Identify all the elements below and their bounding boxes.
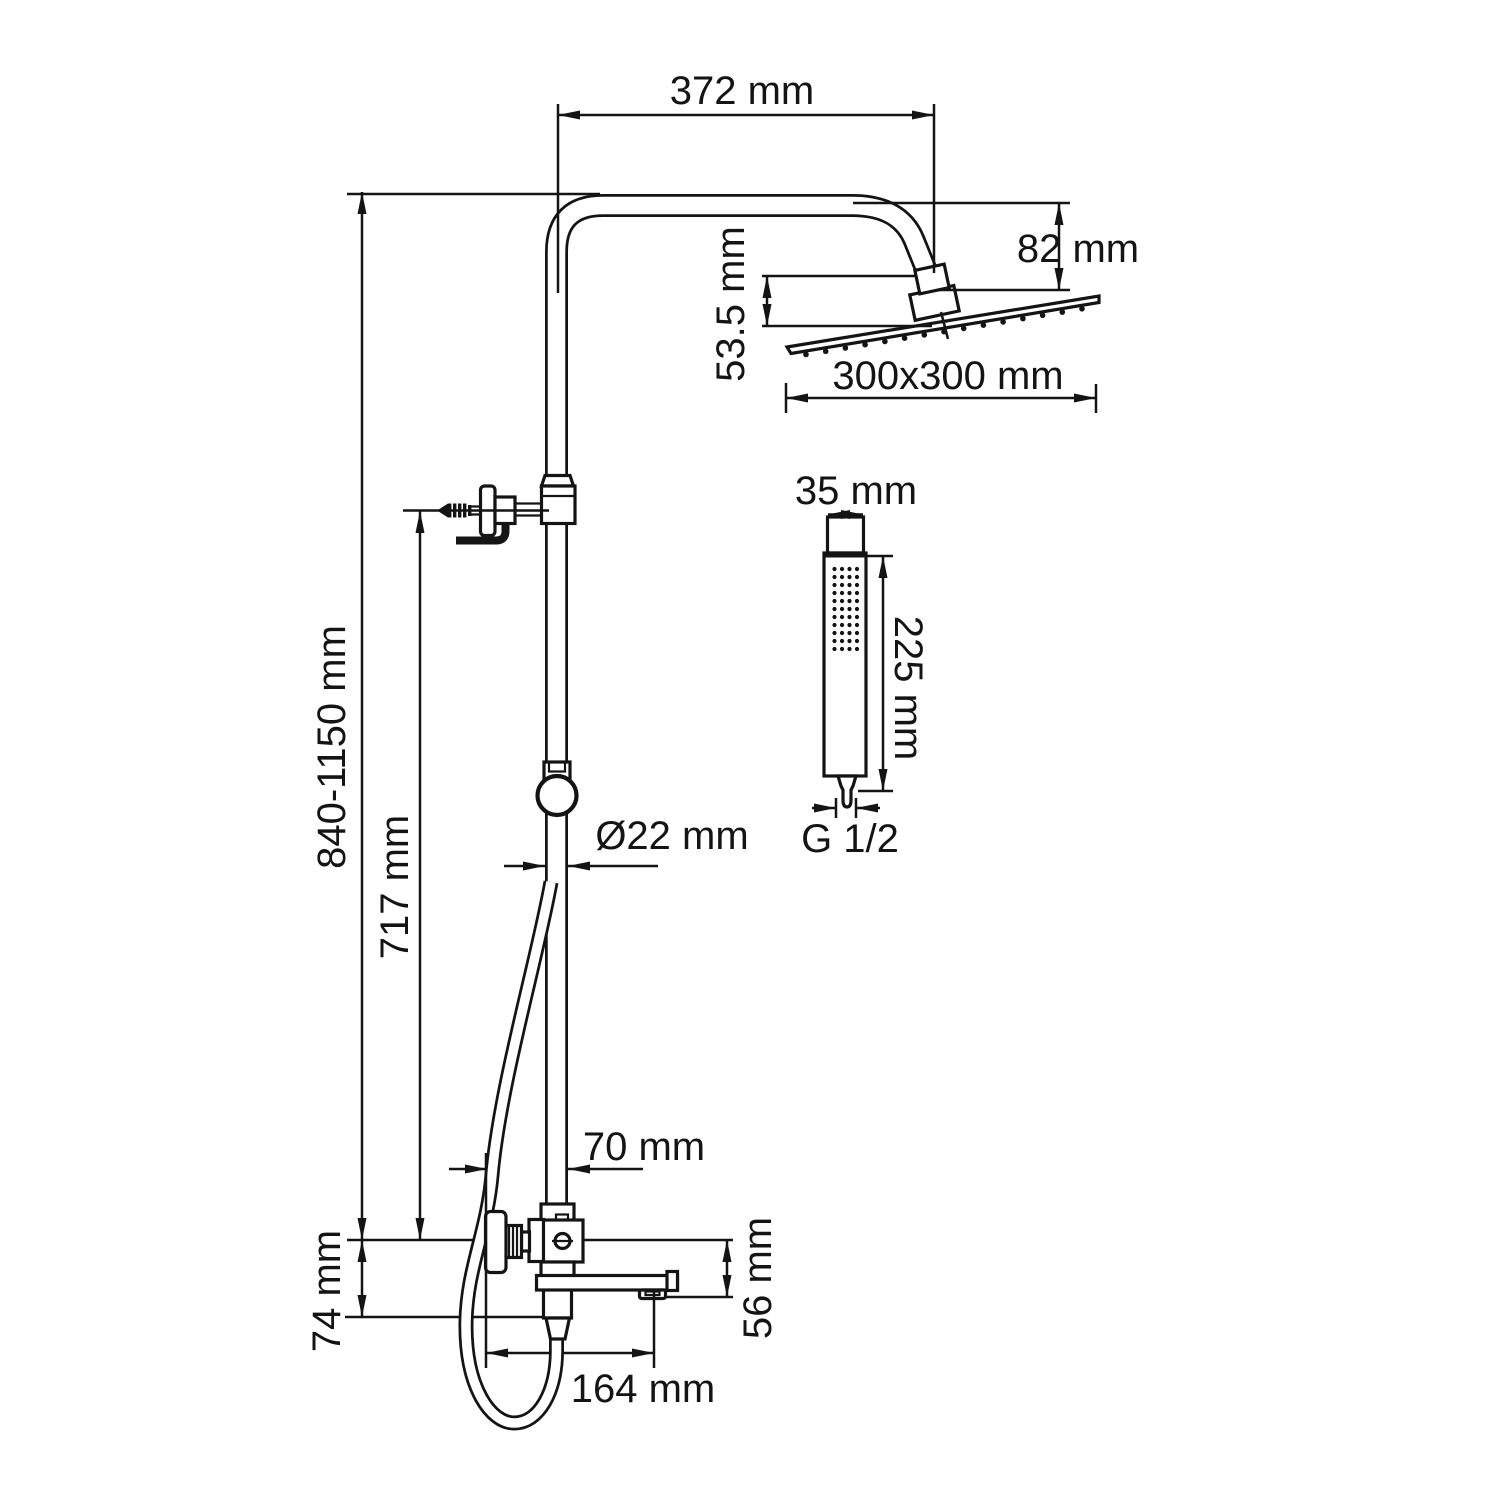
- dim-535-label: 53.5 mm: [709, 226, 753, 382]
- slider-knob: [538, 762, 577, 815]
- dim-82-label: 82 mm: [1017, 227, 1139, 271]
- hand-shower-body: [824, 553, 866, 776]
- dim-840-1150-label: 840-1150 mm: [310, 625, 354, 869]
- dim-74-label: 74 mm: [305, 1230, 349, 1352]
- hand-shower-face-edge: [824, 552, 866, 558]
- hose-outline: [466, 882, 557, 1423]
- dim-372-label: 372 mm: [670, 69, 815, 113]
- bracket-sleeve: [542, 486, 576, 524]
- dim-56-label: 56 mm: [736, 1217, 780, 1339]
- dim-225-label: 225 mm: [886, 616, 930, 761]
- hand-shower: [824, 517, 866, 807]
- rain-shower-head: [787, 264, 1099, 357]
- knob-wheel: [538, 776, 577, 815]
- dim-717-label: 717 mm: [373, 815, 417, 960]
- hand-shower-cap: [828, 517, 864, 553]
- hand-shower-inlet: [838, 776, 856, 807]
- mixer-wall-flange: [486, 1212, 507, 1273]
- hose-nut: [546, 1318, 570, 1339]
- bath-mixer: [486, 1204, 678, 1339]
- spout-bar: [537, 1276, 678, 1291]
- dim-70-label: 70 mm: [583, 1125, 705, 1169]
- mixer-lower-tube: [544, 1288, 572, 1318]
- hose-core: [466, 882, 557, 1423]
- thread-label: G 1/2: [801, 817, 899, 861]
- mixer-left-plate: [529, 1220, 544, 1262]
- dim-22-label: Ø22 mm: [595, 814, 748, 858]
- shower-system-diagram: 372 mm 840-1150 mm 717 mm 82 mm 53.5 mm …: [0, 0, 1500, 1500]
- shower-hose: [466, 882, 557, 1423]
- dim-300-label: 300x300 mm: [832, 354, 1063, 398]
- dim-35-label: 35 mm: [795, 469, 917, 513]
- spout-end-cap: [667, 1272, 678, 1291]
- dim-164-label: 164 mm: [571, 1367, 716, 1411]
- drawing-canvas: 372 mm 840-1150 mm 717 mm 82 mm 53.5 mm …: [0, 0, 1500, 1500]
- dimension-lines: 372 mm 840-1150 mm 717 mm 82 mm 53.5 mm …: [305, 69, 1139, 1411]
